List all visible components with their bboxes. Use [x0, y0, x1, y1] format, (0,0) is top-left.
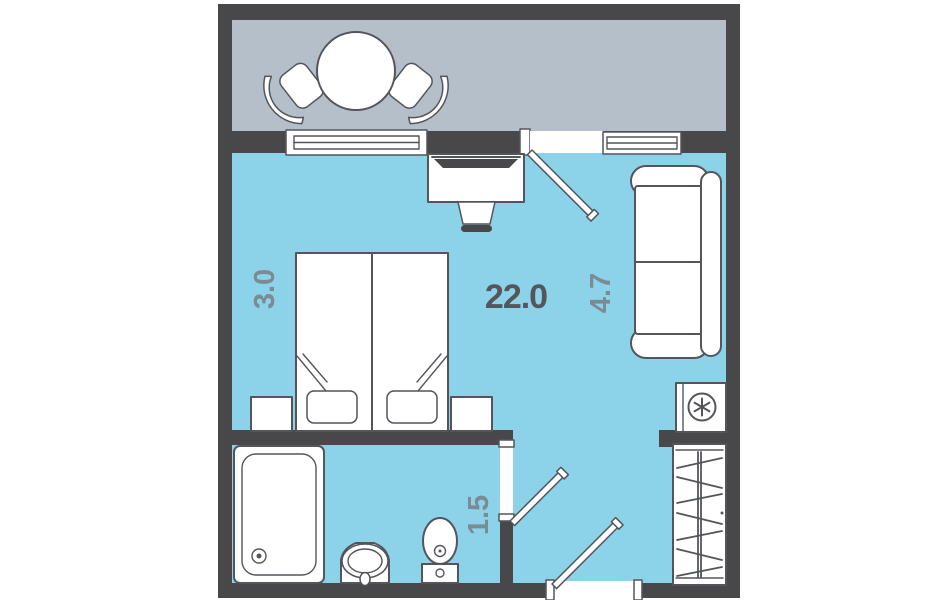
toilet-tank [422, 564, 458, 583]
nightstand-left [251, 397, 292, 431]
hallway-width-label: 1.5 [463, 495, 495, 535]
balcony-door-opening [530, 131, 603, 153]
window-right [603, 132, 681, 154]
bathtub [234, 446, 324, 583]
pillow [307, 391, 357, 423]
pillow [387, 391, 437, 423]
drain [257, 554, 262, 559]
toilet [422, 518, 458, 583]
desk-chair-base [461, 225, 492, 232]
floor-plan: 22.0 3.0 4.7 1.5 [0, 0, 952, 600]
wall-bathroom-top [218, 430, 513, 445]
floor-plan-drawing: 22.0 3.0 4.7 1.5 [0, 0, 952, 600]
wall-left [218, 4, 232, 598]
bed-left [296, 253, 372, 431]
refrigerator [676, 383, 726, 432]
room-length-label: 4.7 [585, 273, 617, 313]
desk-chair [458, 202, 495, 224]
wardrobe-handle [721, 512, 724, 515]
wall-top [218, 4, 740, 20]
nightstand-right [451, 397, 492, 431]
sofa-backrest [701, 172, 721, 356]
sink [341, 543, 389, 586]
entrance-opening [553, 581, 635, 600]
round-table [317, 32, 395, 110]
balcony-door-jamb [520, 129, 530, 155]
entrance-jamb-right [634, 580, 642, 600]
faucet [360, 573, 370, 586]
window-left [286, 130, 427, 155]
bed-right [372, 253, 448, 431]
wall-right [726, 4, 740, 598]
wardrobe [673, 444, 726, 585]
sofa [631, 166, 721, 358]
bathroom-door-jamb-top [499, 440, 514, 447]
room-area-label: 22.0 [485, 278, 547, 316]
wall-bottom [218, 583, 740, 598]
bathroom-door-opening [500, 445, 513, 518]
room-width-label: 3.0 [249, 269, 281, 309]
monitor-icon [434, 159, 518, 168]
